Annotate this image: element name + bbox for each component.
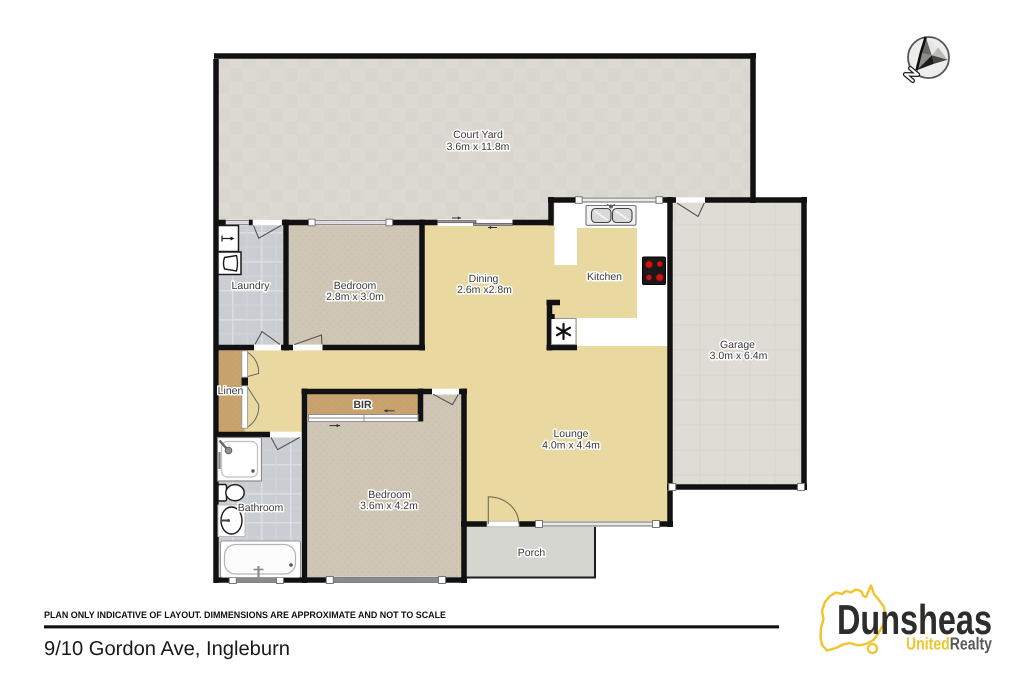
svg-text:2.8m x 3.0m: 2.8m x 3.0m xyxy=(326,291,384,303)
svg-text:3.6m x 4.2m: 3.6m x 4.2m xyxy=(360,500,418,512)
svg-text:Linen: Linen xyxy=(218,385,244,397)
svg-text:Bathroom: Bathroom xyxy=(238,502,284,514)
svg-text:4.0m x 4.4m: 4.0m x 4.4m xyxy=(542,440,600,452)
svg-text:2.6m x2.8m: 2.6m x2.8m xyxy=(457,284,512,296)
svg-text:BIR: BIR xyxy=(353,399,372,411)
svg-text:Kitchen: Kitchen xyxy=(587,271,622,283)
svg-text:Lounge: Lounge xyxy=(553,428,588,440)
svg-text:Court Yard: Court Yard xyxy=(453,129,503,141)
svg-text:PLAN ONLY INDICATIVE OF LAYOUT: PLAN ONLY INDICATIVE OF LAYOUT. DIMMENSI… xyxy=(44,609,446,620)
svg-text:3.0m x 6.4m: 3.0m x 6.4m xyxy=(710,350,768,362)
svg-text:9/10 Gordon Ave, Ingleburn: 9/10 Gordon Ave, Ingleburn xyxy=(44,638,290,660)
svg-text:Porch: Porch xyxy=(518,547,546,559)
svg-text:3.6m x 11.8m: 3.6m x 11.8m xyxy=(447,141,510,153)
svg-text:UnitedRealty: UnitedRealty xyxy=(906,634,992,654)
svg-text:Laundry: Laundry xyxy=(232,280,271,292)
